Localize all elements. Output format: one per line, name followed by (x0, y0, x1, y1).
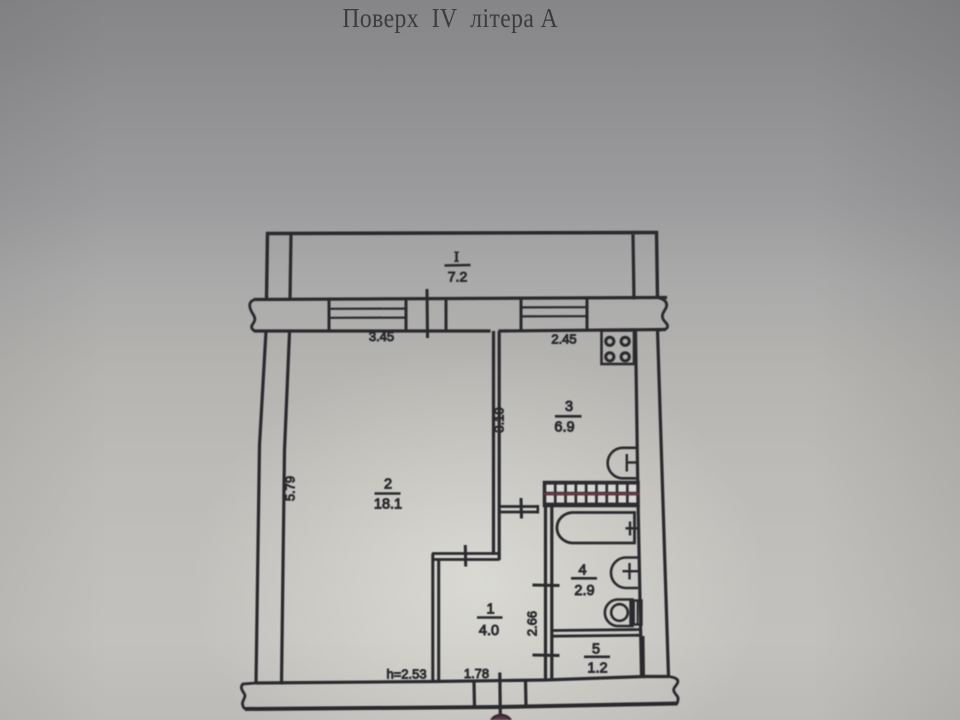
svg-text:2.45: 2.45 (551, 332, 576, 347)
svg-text:7.2: 7.2 (448, 269, 468, 285)
svg-text:18.1: 18.1 (374, 497, 402, 513)
svg-text:1: 1 (486, 602, 494, 618)
svg-text:2: 2 (384, 477, 392, 493)
svg-text:5.79: 5.79 (283, 476, 298, 501)
svg-text:3: 3 (565, 399, 573, 415)
svg-text:4.0: 4.0 (479, 623, 499, 639)
svg-text:h=2.53: h=2.53 (386, 667, 426, 682)
svg-text:1.78: 1.78 (464, 666, 489, 681)
svg-text:5: 5 (592, 642, 600, 658)
svg-text:2.66: 2.66 (525, 611, 540, 636)
svg-text:1.2: 1.2 (587, 661, 607, 677)
svg-text:3.45: 3.45 (369, 329, 394, 344)
svg-text:6.9: 6.9 (554, 420, 574, 436)
svg-text:I: I (454, 250, 459, 266)
svg-text:2.9: 2.9 (574, 583, 594, 599)
svg-text:4: 4 (578, 563, 586, 579)
svg-text:3.10: 3.10 (492, 407, 507, 432)
